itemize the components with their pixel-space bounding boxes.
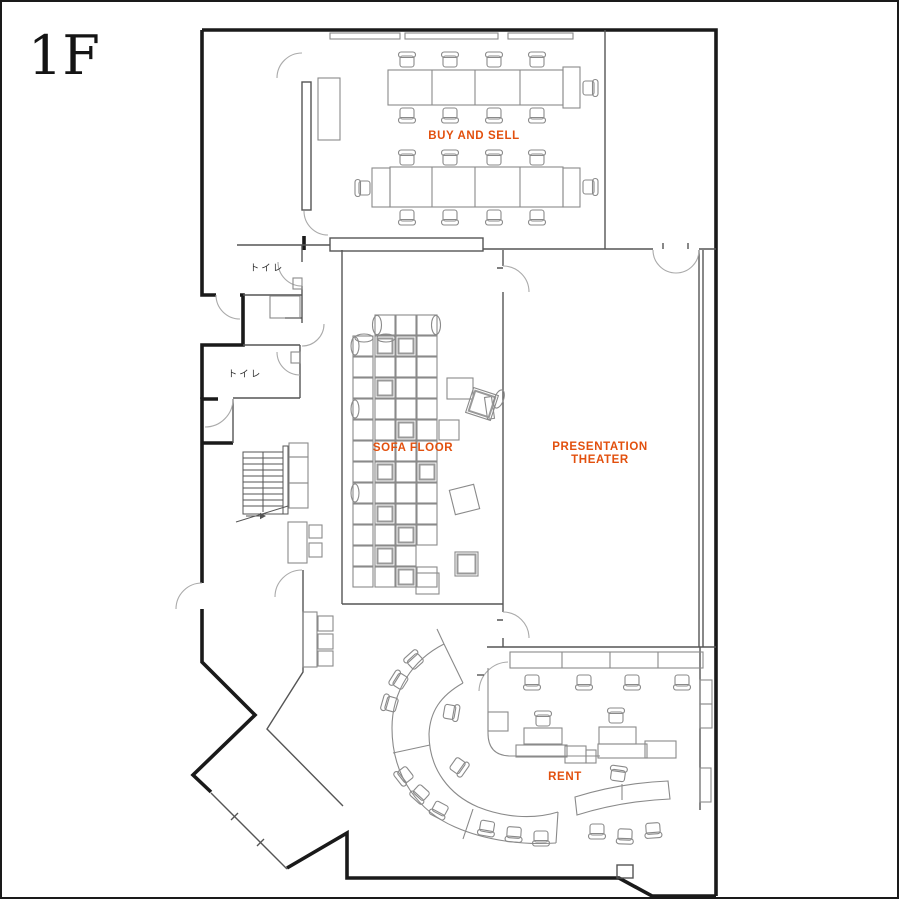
chair [477, 820, 496, 838]
sofa-module [396, 420, 416, 440]
chair [529, 210, 546, 225]
chair [535, 711, 552, 726]
sofa-module [417, 315, 437, 335]
sofa-module [353, 420, 373, 440]
whiteboard [318, 78, 340, 140]
chair [399, 108, 416, 123]
sofa-module [353, 567, 373, 587]
chair [399, 210, 416, 225]
chair [388, 669, 410, 691]
room-label-sofa-floor: SOFA FLOOR [373, 442, 453, 454]
door-arc [676, 250, 699, 273]
partition-wall [330, 238, 483, 251]
staircase [236, 446, 288, 522]
chair [380, 693, 399, 713]
chair [486, 52, 503, 67]
floor-plan-page: 1F BUY AND SELL SOFA FLOOR PRESENTATION … [0, 0, 900, 900]
chair [583, 179, 598, 196]
chair [583, 80, 598, 97]
door-arc [302, 324, 324, 346]
door-arc [275, 570, 302, 597]
chair [486, 210, 503, 225]
sofa-module [417, 399, 437, 419]
sofa-module [375, 336, 395, 356]
chair [355, 180, 370, 197]
chair [624, 675, 641, 690]
chair [529, 108, 546, 123]
sofa-pillow [492, 389, 507, 410]
chair [486, 108, 503, 123]
sofa-module [447, 378, 473, 399]
chair [674, 675, 691, 690]
sofa-module [353, 504, 373, 524]
sofa-pillow [373, 316, 382, 335]
sofa-module [353, 483, 373, 503]
chair [505, 826, 523, 842]
door-arc [304, 211, 328, 235]
chair [393, 765, 415, 788]
sofa-module [375, 378, 395, 398]
sofa-module [417, 462, 437, 482]
window [330, 33, 400, 39]
sofa-pillow [355, 334, 373, 342]
sofa-module [396, 315, 416, 335]
sofa-module [396, 462, 416, 482]
door-arc [503, 612, 529, 638]
sofa-module [417, 420, 437, 440]
sofa-module [417, 525, 437, 545]
sofa-module [396, 357, 416, 377]
chair [442, 150, 459, 165]
interior-walls [211, 30, 716, 878]
door-arc [503, 266, 529, 292]
chair [529, 150, 546, 165]
sofa-pillow [351, 400, 359, 418]
chair [399, 52, 416, 67]
sofa-module [417, 357, 437, 377]
sofa-pillow [351, 484, 359, 502]
sofa-module [375, 399, 395, 419]
sofa-pillow [432, 316, 441, 335]
sofa-module [455, 552, 478, 576]
chair [524, 675, 541, 690]
room-label-toilet-lower: トイレ [228, 369, 263, 380]
chair [448, 756, 470, 779]
chair [609, 765, 628, 782]
sofa-module [375, 315, 395, 335]
sofa-module [417, 567, 437, 587]
window [405, 33, 498, 39]
sofa-module [375, 357, 395, 377]
sofa-module [375, 504, 395, 524]
sofa-module [396, 483, 416, 503]
sofa-module [396, 546, 416, 566]
door-arc [653, 250, 676, 273]
room-label-rent: RENT [548, 771, 582, 783]
door-arc [216, 295, 240, 319]
sofa-module [449, 484, 479, 514]
sofa-module [375, 546, 395, 566]
toilet-stall [270, 296, 300, 318]
chair [529, 52, 546, 67]
sofa-pillow [351, 337, 359, 355]
window [508, 33, 573, 39]
sofa-module [375, 462, 395, 482]
sofa-module [375, 483, 395, 503]
floor-plan-svg: 1F BUY AND SELL SOFA FLOOR PRESENTATION … [0, 0, 900, 900]
lobby-cabinets [288, 443, 333, 667]
chair [616, 829, 634, 845]
sofa-module [396, 525, 416, 545]
door-arc [205, 399, 233, 427]
sofa-module [353, 378, 373, 398]
room-label-buy-and-sell: BUY AND SELL [428, 130, 520, 142]
chair [576, 675, 593, 690]
sofa-module [396, 399, 416, 419]
door-arc [479, 662, 508, 691]
sofa-module [353, 462, 373, 482]
door-arc [277, 53, 302, 78]
chair [442, 108, 459, 123]
sofa-module [417, 378, 437, 398]
room-label-presentation-line2: THEATER [571, 454, 629, 466]
chair [486, 150, 503, 165]
chair [442, 210, 459, 225]
sofa-module [353, 546, 373, 566]
sofa-module [353, 399, 373, 419]
room-label-presentation-line1: PRESENTATION [552, 441, 648, 453]
door-arc [176, 583, 202, 609]
chair [443, 703, 461, 722]
chair [608, 708, 625, 723]
sofa-module [417, 483, 437, 503]
sofa-module [375, 525, 395, 545]
sink [293, 278, 302, 289]
sofa-module [416, 573, 439, 594]
toilet-fixtures [270, 278, 302, 363]
sofa-module [396, 504, 416, 524]
sofa-module [353, 357, 373, 377]
sofa-module [417, 336, 437, 356]
chair [644, 822, 662, 838]
sofa-module [417, 504, 437, 524]
outer-walls [193, 30, 716, 896]
chair [589, 824, 606, 839]
rent-area [392, 629, 712, 843]
chair [399, 150, 416, 165]
room-label-toilet-upper: トイレ [250, 263, 285, 274]
sink [291, 352, 300, 363]
sofa-module [396, 567, 416, 587]
sofa-module [353, 336, 373, 356]
sofa-module [439, 420, 459, 440]
sofa-module [375, 420, 395, 440]
chair [428, 800, 450, 821]
sofa-module [353, 525, 373, 545]
sofa-floor-seating [351, 315, 506, 594]
sofa-module [396, 378, 416, 398]
chair [442, 52, 459, 67]
sofa-module [353, 441, 373, 461]
floor-label: 1F [28, 24, 100, 87]
sofa-module [396, 336, 416, 356]
sofa-module [375, 567, 395, 587]
